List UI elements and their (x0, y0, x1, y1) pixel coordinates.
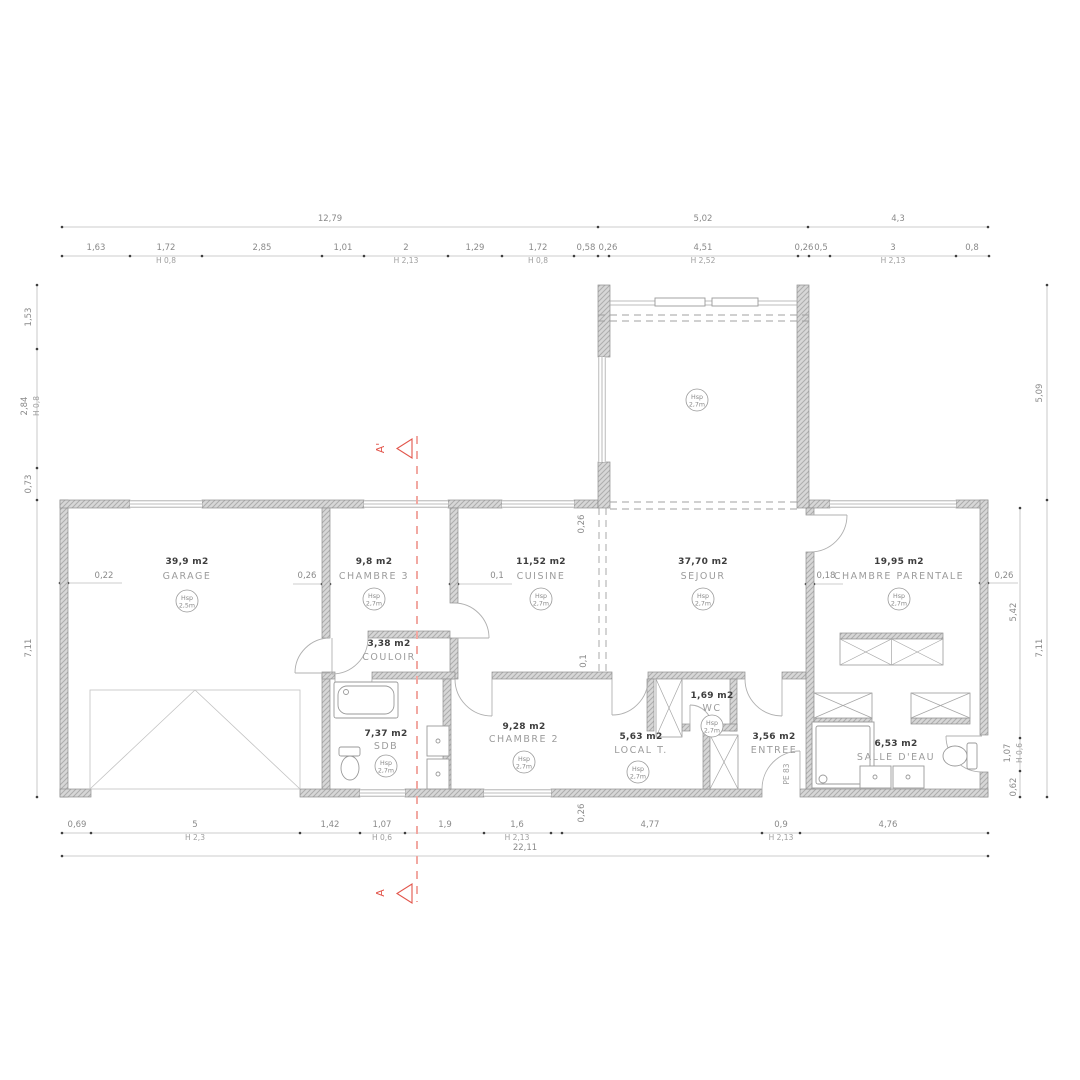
door-garage (295, 638, 330, 673)
room-area-chambre-3: 9,8 m2 (356, 557, 393, 567)
wall-segment (492, 672, 612, 679)
section-arrow-top (397, 439, 412, 458)
wall-segment (339, 747, 360, 756)
dim-tick (90, 832, 93, 835)
wall-segment (797, 285, 809, 508)
ceiling-height-badge-garage: Hsp2,5m (176, 590, 198, 612)
plan-line (195, 690, 300, 789)
dim-tick (483, 832, 486, 835)
room-area-sejour: 37,70 m2 (678, 557, 728, 567)
plan-line (344, 690, 349, 695)
door-cuisine (454, 603, 489, 638)
dim-tick (1019, 796, 1022, 799)
dim-label: 1,07 (373, 820, 392, 830)
walls (60, 285, 988, 797)
wall-segment (450, 508, 458, 603)
dim-tick (61, 855, 64, 858)
wall-segment (730, 679, 737, 731)
badge-line2: 2,7m (695, 601, 711, 608)
ceiling-height-badge-chambre-3: Hsp2,7m (363, 588, 385, 610)
dim-tick (447, 255, 450, 258)
door-entree-sejour (745, 679, 782, 716)
dim-tick (987, 226, 990, 229)
dim-label: 1,9 (438, 820, 452, 830)
dim-tick (61, 226, 64, 229)
badge-line2: 2,7m (533, 601, 549, 608)
door-chambre-parentale (810, 515, 847, 552)
dim-tick (988, 255, 991, 258)
dim-label: 0,26 (577, 515, 587, 534)
room-name-chambre-3: CHAMBRE 3 (339, 571, 409, 582)
dim-label: H 2,13 (505, 833, 530, 842)
badge-line2: 2,7m (891, 601, 907, 608)
plan-line (90, 690, 195, 789)
dim-tick (36, 467, 39, 470)
wall-segment (806, 508, 814, 515)
dim-label: H 0,8 (528, 256, 548, 265)
dim-label: 2,84 (20, 397, 30, 416)
window (130, 500, 202, 508)
ceiling-height-badge-sejour-upper: Hsp2,7m (686, 389, 708, 411)
dim-label: 4,51 (694, 243, 713, 253)
dim-label: 2 (403, 243, 408, 253)
room-name-entree: ENTREE (751, 745, 798, 756)
wall-segment (551, 789, 762, 797)
closet-local-t (656, 679, 682, 737)
plan-line (436, 772, 440, 776)
room-name-chambre-2: CHAMBRE 2 (489, 734, 559, 745)
dim-label: 1,6 (510, 820, 524, 830)
room-area-cuisine: 11,52 m2 (516, 557, 566, 567)
badge-line2: 2,7m (689, 402, 705, 409)
wall-segment (809, 500, 830, 508)
door-front-entrance (762, 751, 800, 789)
dim-label: 5,02 (694, 214, 713, 224)
dim-label: 0,8 (965, 243, 979, 253)
dim-label: H 2,52 (691, 256, 716, 265)
dim-tick (1019, 507, 1022, 510)
dim-tick (299, 832, 302, 835)
dim-label: 0,58 (577, 243, 596, 253)
dim-tick (359, 832, 362, 835)
room-area-chambre-2: 9,28 m2 (502, 722, 545, 732)
badge-line1: Hsp (535, 593, 547, 600)
window (364, 500, 448, 508)
wall-segment (60, 500, 130, 508)
dim-tick (501, 255, 504, 258)
wall-segment (405, 789, 484, 797)
bay-window-and-openings (598, 298, 809, 672)
dim-label: 4,76 (879, 820, 898, 830)
plan-line (906, 775, 910, 779)
dim-label: 3 (890, 243, 895, 253)
badge-line1: Hsp (368, 593, 380, 600)
dim-tick (363, 255, 366, 258)
door-chambre-2 (455, 679, 492, 716)
room-area-wc: 1,69 m2 (690, 691, 733, 701)
badge-line1: Hsp (518, 756, 530, 763)
badge-line1: Hsp (893, 593, 905, 600)
dim-label: 0,1 (579, 654, 589, 668)
window (830, 500, 956, 508)
dim-label: H 2,3 (185, 833, 205, 842)
dim-label: 2,85 (253, 243, 272, 253)
wall-segment (372, 672, 455, 679)
dim-tick (597, 255, 600, 258)
dim-label: 5,09 (1035, 384, 1045, 403)
wall-segment (967, 743, 977, 769)
ceiling-height-badge-wc: Hsp2,7m (701, 715, 723, 737)
vanity-salle-d-eau (860, 766, 924, 788)
wall-segment (368, 631, 450, 638)
dim-label: 1,53 (24, 308, 34, 327)
room-area-couloir: 3,38 m2 (367, 639, 410, 649)
window-panel (712, 298, 758, 306)
dim-tick (808, 255, 811, 258)
dim-label: 0,18 (817, 571, 836, 581)
wall-segment (647, 679, 654, 731)
section-arrow-bottom (397, 884, 412, 903)
wall-segment (682, 724, 690, 731)
room-name-couloir: COULOIR (362, 652, 415, 663)
dim-tick (61, 255, 64, 258)
closet-parentale-right (911, 693, 970, 718)
wall-segment (703, 731, 710, 789)
room-name-garage: GARAGE (163, 571, 212, 582)
dim-label: 12,79 (318, 214, 342, 224)
badge-line1: Hsp (691, 394, 703, 401)
window (360, 789, 405, 797)
dim-label: H 0,6 (372, 833, 392, 842)
room-area-garage: 39,9 m2 (165, 557, 208, 567)
dim-label: 0,26 (599, 243, 618, 253)
dim-tick (573, 255, 576, 258)
dim-label: 1,42 (321, 820, 340, 830)
wall-segment (448, 500, 502, 508)
plan-line (810, 515, 847, 552)
dim-tick (36, 348, 39, 351)
door-local-t (612, 679, 648, 715)
ceiling-height-badge-local-t: Hsp2,7m (627, 761, 649, 783)
window-panel (655, 298, 705, 306)
room-area-local-t: 5,63 m2 (619, 732, 662, 742)
dim-tick (987, 855, 990, 858)
dim-label: 1,63 (87, 243, 106, 253)
window (502, 500, 574, 508)
wall-segment (800, 789, 988, 797)
ceiling-height-badge-chambre-2: Hsp2,7m (513, 751, 535, 773)
dim-label: 1,72 (529, 243, 548, 253)
plan-line (873, 775, 877, 779)
badge-line1: Hsp (181, 595, 193, 602)
dim-tick (1046, 499, 1049, 502)
plan-line (436, 739, 440, 743)
wall-segment (980, 500, 988, 735)
ceiling-height-badge-sdb: Hsp2,7m (375, 755, 397, 777)
room-name-local-t: LOCAL T. (614, 745, 668, 756)
dim-tick (799, 832, 802, 835)
dim-label: 1,07 (1003, 744, 1013, 763)
dim-label: 22,11 (513, 843, 537, 853)
dim-label: 1,72 (157, 243, 176, 253)
wall-segment (598, 462, 610, 508)
dim-label: 0,5 (814, 243, 828, 253)
dim-tick (987, 832, 990, 835)
dim-label: H 0,8 (156, 256, 176, 265)
bathtub (334, 682, 398, 718)
dim-tick (61, 832, 64, 835)
badge-line1: Hsp (380, 760, 392, 767)
dim-label: 0,26 (995, 571, 1014, 581)
dim-label: 0,26 (795, 243, 814, 253)
badge-line2: 2,7m (704, 728, 720, 735)
wall-segment (322, 508, 330, 638)
room-name-chambre-parentale: CHAMBRE PARENTALE (834, 571, 964, 582)
garage-door (90, 690, 300, 789)
dim-tick (201, 255, 204, 258)
badge-line2: 2,7m (630, 774, 646, 781)
floor-plan-page: 12,795,024,31,631,722,851,0121,291,720,5… (0, 0, 1080, 1080)
room-area-entree: 3,56 m2 (752, 732, 795, 742)
dim-label: H 2,13 (394, 256, 419, 265)
room-name-sejour: SEJOUR (681, 571, 726, 582)
dim-tick (829, 255, 832, 258)
dim-label: 0,9 (774, 820, 788, 830)
dim-tick (36, 796, 39, 799)
dim-label: H 0,8 (32, 396, 41, 416)
dim-label: 0,73 (24, 475, 34, 494)
wall-segment (840, 633, 943, 639)
dim-label: 5 (192, 820, 197, 830)
dim-tick (1019, 770, 1022, 773)
wall-segment (60, 789, 91, 797)
ceiling-height-badge-sejour: Hsp2,7m (692, 588, 714, 610)
dim-label: 1,01 (334, 243, 353, 253)
wall-segment (911, 718, 970, 724)
dim-label: 0,69 (68, 820, 87, 830)
plan-line (341, 756, 359, 780)
wall-segment (60, 500, 68, 797)
dim-tick (1046, 796, 1049, 799)
dim-label: H 0,6 (1015, 743, 1024, 763)
dim-label: 4,77 (641, 820, 660, 830)
badge-line2: 2,5m (179, 603, 195, 610)
dim-tick (321, 255, 324, 258)
room-area-salle-d-eau: 6,53 m2 (874, 739, 917, 749)
plan-line (943, 746, 967, 766)
toilet-salle-d-eau (943, 743, 977, 769)
room-name-cuisine: CUISINE (517, 571, 566, 582)
wall-segment (782, 672, 806, 679)
dim-tick (36, 499, 39, 502)
closet-parentale-left (814, 693, 872, 718)
dim-label: 7,11 (1035, 639, 1045, 658)
wall-segment (322, 674, 330, 789)
dim-tick (550, 832, 553, 835)
dim-tick (608, 255, 611, 258)
dim-label: H 2,13 (769, 833, 794, 842)
dim-tick (1046, 284, 1049, 287)
wall-segment (574, 500, 598, 508)
dim-label: 5,42 (1009, 603, 1019, 622)
room-area-chambre-parentale: 19,95 m2 (874, 557, 924, 567)
plan-line (762, 751, 800, 789)
badge-line1: Hsp (697, 593, 709, 600)
badge-line2: 2,7m (366, 601, 382, 608)
dim-label: 0,22 (95, 571, 114, 581)
badge-line1: Hsp (706, 720, 718, 727)
plan-line (455, 679, 492, 716)
ceiling-height-badge-chambre-parentale: Hsp2,7m (888, 588, 910, 610)
window (484, 789, 551, 797)
badge-line2: 2,7m (378, 768, 394, 775)
plan-line (454, 603, 489, 638)
room-name-salle-d-eau: SALLE D'EAU (857, 752, 935, 763)
window (598, 357, 606, 462)
wall-segment (202, 500, 364, 508)
plan-line (745, 679, 782, 716)
section-label-a: A (374, 889, 387, 897)
dim-label: 0,26 (577, 804, 587, 823)
closet-entree (710, 735, 738, 789)
toilet-sdb (339, 747, 360, 780)
dim-tick (404, 832, 407, 835)
dim-label: 4,3 (891, 214, 905, 224)
dim-tick (1019, 737, 1022, 740)
section-label-a-prime: A' (374, 443, 387, 454)
closet-parentale-long (840, 639, 943, 665)
dim-label: 0,26 (298, 571, 317, 581)
wall-segment (300, 789, 360, 797)
dim-label: H 2,13 (881, 256, 906, 265)
dim-tick (807, 226, 810, 229)
dim-tick (36, 284, 39, 287)
room-area-sdb: 7,37 m2 (364, 729, 407, 739)
plan-line (819, 775, 827, 783)
dim-tick (761, 832, 764, 835)
dim-label: 7,11 (24, 639, 34, 658)
dim-tick (561, 832, 564, 835)
ceiling-height-badge-cuisine: Hsp2,7m (530, 588, 552, 610)
dim-label: 0,62 (1009, 778, 1019, 797)
wall-segment (648, 672, 745, 679)
dim-tick (129, 255, 132, 258)
plan-line (295, 638, 330, 673)
dim-tick (597, 226, 600, 229)
floor-plan-drawing: 12,795,024,31,631,722,851,0121,291,720,5… (0, 0, 1080, 1080)
dim-tick (797, 255, 800, 258)
wall-segment (90, 690, 300, 789)
dim-label: 1,29 (466, 243, 485, 253)
dim-label: PE 83 (782, 763, 791, 784)
dim-label: 0,1 (490, 571, 504, 581)
badge-line2: 2,7m (516, 764, 532, 771)
plan-line (612, 679, 648, 715)
room-name-sdb: SDB (374, 741, 398, 752)
badge-line1: Hsp (632, 766, 644, 773)
room-name-wc: WC (702, 703, 721, 714)
dim-tick (955, 255, 958, 258)
